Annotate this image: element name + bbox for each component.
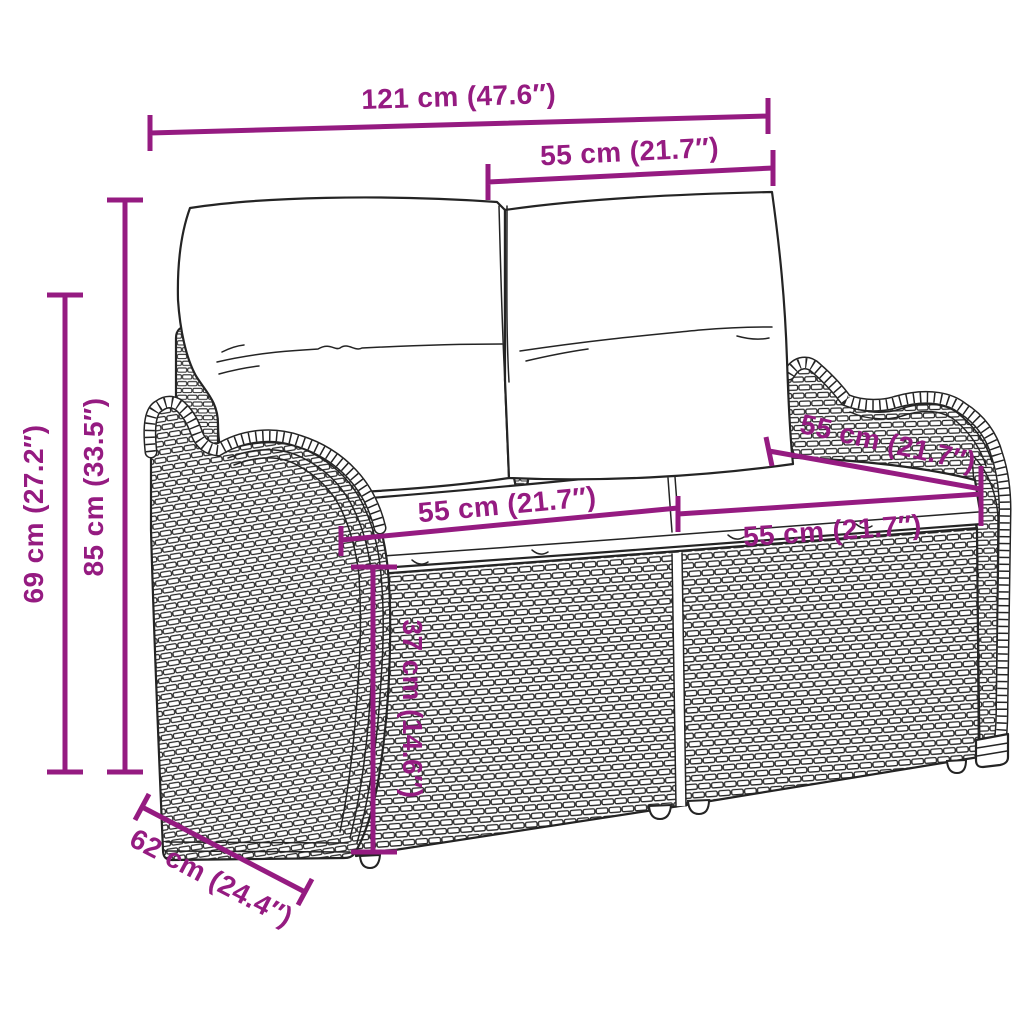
dim-back-cushion-width: 55 cm (21.7″): [488, 132, 773, 200]
dim-back-height: 85 cm (33.5″): [78, 200, 143, 772]
dim-back-height-label: 85 cm (33.5″): [78, 398, 109, 577]
right-armrest-bottom-binding: [976, 734, 1008, 767]
dim-overall-width-label: 121 cm (47.6″): [361, 78, 557, 115]
back-cushion-right: [505, 192, 793, 479]
dim-seat-height-label: 37 cm (14.6″): [397, 620, 428, 799]
dim-back-cushion-width-label: 55 cm (21.7″): [539, 132, 719, 172]
dim-arm-height: 69 cm (27.2″): [18, 295, 83, 772]
product-dimension-diagram: 121 cm (47.6″) 55 cm (21.7″) 85 cm (33.5…: [0, 0, 1024, 1024]
dim-arm-height-label: 69 cm (27.2″): [18, 425, 49, 604]
